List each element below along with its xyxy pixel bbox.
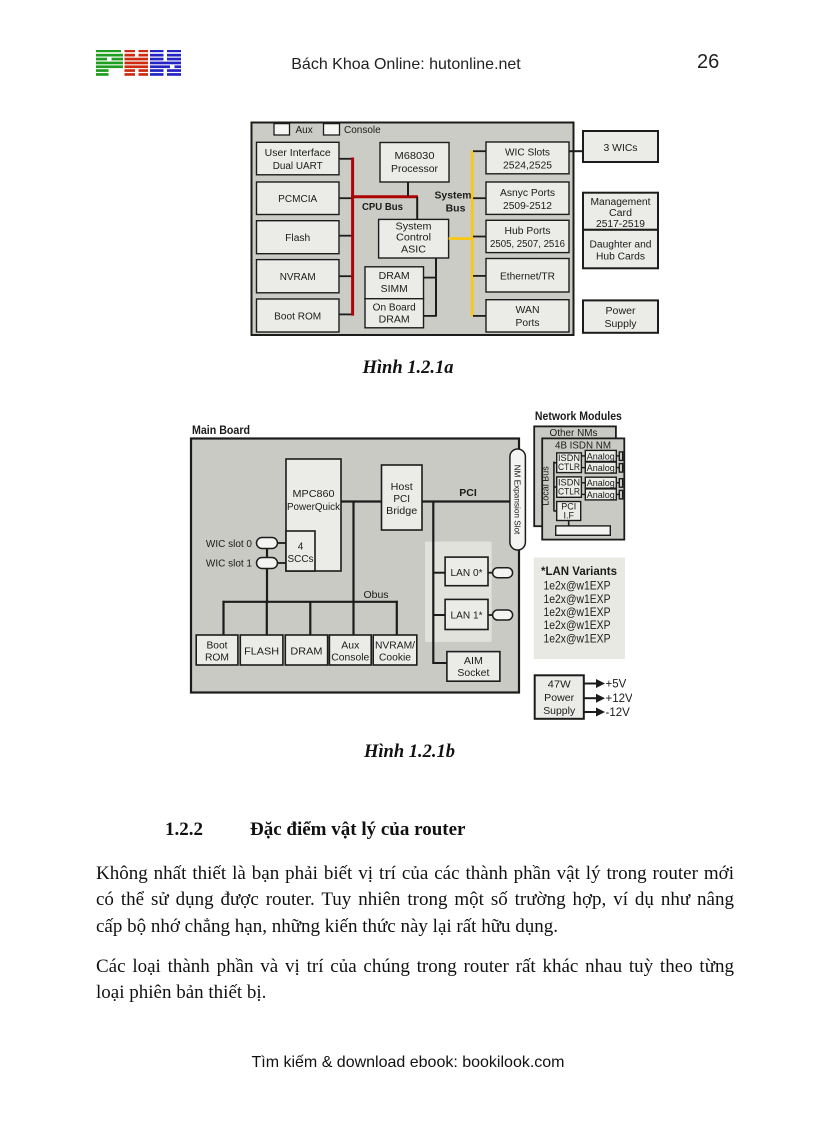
svg-text:Socket: Socket (457, 668, 489, 679)
svg-text:2517-2519: 2517-2519 (596, 219, 645, 230)
svg-text:Hub Cards: Hub Cards (596, 252, 645, 263)
svg-text:NM Expansion Slot: NM Expansion Slot (513, 465, 522, 535)
svg-text:LAN 1*: LAN 1* (451, 611, 483, 622)
svg-text:DRAM: DRAM (379, 315, 410, 326)
svg-text:DRAM: DRAM (379, 271, 410, 282)
svg-text:4: 4 (298, 542, 304, 553)
svg-text:Cookie: Cookie (379, 653, 411, 664)
svg-text:+5V: +5V (606, 679, 627, 691)
svg-text:FLASH: FLASH (244, 647, 279, 658)
svg-text:WIC slot 1: WIC slot 1 (206, 559, 253, 570)
svg-text:Analog: Analog (587, 478, 615, 488)
svg-text:Flash: Flash (285, 233, 310, 244)
svg-text:CPU Bus: CPU Bus (362, 201, 403, 213)
svg-text:NVRAM/: NVRAM/ (375, 641, 415, 652)
svg-text:*LAN Variants: *LAN Variants (541, 564, 617, 578)
svg-text:I.F: I.F (563, 511, 574, 521)
svg-text:CTLR: CTLR (558, 462, 580, 472)
svg-text:Management: Management (591, 197, 651, 208)
svg-text:Bridge: Bridge (386, 506, 417, 517)
svg-text:3 WICs: 3 WICs (604, 143, 638, 154)
svg-text:AIM: AIM (464, 656, 483, 667)
svg-text:Ports: Ports (516, 318, 540, 329)
svg-text:WIC Slots: WIC Slots (505, 148, 550, 159)
svg-text:ASIC: ASIC (401, 245, 426, 256)
svg-text:PCI: PCI (459, 487, 477, 499)
svg-text:PowerQuick: PowerQuick (287, 502, 341, 513)
svg-text:1e2x@w1EXP: 1e2x@w1EXP (544, 592, 611, 606)
svg-text:2524,2525: 2524,2525 (503, 161, 552, 172)
svg-text:2505, 2507, 2516: 2505, 2507, 2516 (490, 239, 565, 250)
svg-text:NVRAM: NVRAM (280, 272, 316, 283)
svg-text:Obus: Obus (363, 589, 388, 601)
svg-text:PCMCIA: PCMCIA (278, 194, 317, 205)
svg-text:Console: Console (331, 653, 369, 664)
svg-text:M68030: M68030 (395, 151, 435, 162)
svg-text:MPC860: MPC860 (293, 489, 335, 500)
svg-text:Ethernet/TR: Ethernet/TR (500, 272, 555, 283)
svg-text:Dual UART: Dual UART (273, 161, 323, 172)
svg-text:System: System (435, 190, 472, 202)
svg-text:PCI: PCI (393, 494, 410, 505)
svg-text:User Interface: User Interface (265, 148, 331, 159)
svg-text:2509-2512: 2509-2512 (503, 201, 552, 212)
svg-text:Aux: Aux (296, 125, 313, 136)
svg-text:Power: Power (606, 306, 637, 317)
svg-text:LAN 0*: LAN 0* (451, 568, 483, 579)
svg-text:SIMM: SIMM (381, 284, 408, 295)
svg-text:Aux: Aux (341, 641, 359, 652)
svg-text:1e2x@w1EXP: 1e2x@w1EXP (544, 605, 611, 619)
svg-text:Main Board: Main Board (192, 423, 250, 437)
svg-text:1e2x@w1EXP: 1e2x@w1EXP (544, 632, 611, 646)
svg-text:On Board: On Board (373, 303, 416, 314)
svg-text:+12V: +12V (606, 693, 633, 705)
svg-text:1e2x@w1EXP: 1e2x@w1EXP (544, 618, 611, 632)
svg-text:Card: Card (609, 208, 632, 219)
svg-text:SCCs: SCCs (288, 554, 314, 565)
svg-text:Control: Control (396, 233, 431, 244)
svg-text:-12V: -12V (606, 707, 631, 719)
svg-text:Other NMs: Other NMs (550, 428, 598, 439)
svg-text:System: System (396, 222, 432, 233)
svg-text:Power: Power (544, 692, 575, 704)
svg-text:Analog: Analog (587, 490, 615, 500)
svg-text:Analog: Analog (587, 463, 615, 473)
svg-text:Boot ROM: Boot ROM (274, 312, 321, 323)
svg-text:WIC slot 0: WIC slot 0 (206, 539, 253, 550)
svg-text:Hub Ports: Hub Ports (505, 226, 551, 237)
svg-text:Bus: Bus (446, 203, 466, 215)
svg-text:DRAM: DRAM (290, 647, 322, 658)
svg-text:1e2x@w1EXP: 1e2x@w1EXP (544, 579, 611, 593)
svg-text:ROM: ROM (205, 653, 229, 664)
svg-text:WAN: WAN (516, 305, 540, 316)
svg-text:CTLR: CTLR (558, 487, 580, 497)
svg-text:Analog: Analog (587, 451, 615, 461)
svg-text:Host: Host (391, 482, 413, 493)
svg-text:Processor: Processor (391, 164, 439, 175)
svg-text:Local Bus: Local Bus (541, 466, 551, 506)
svg-text:47W: 47W (548, 679, 571, 691)
svg-text:Daughter and: Daughter and (590, 240, 652, 251)
svg-text:Network Modules: Network Modules (535, 409, 622, 423)
svg-text:Supply: Supply (605, 319, 637, 330)
svg-text:Asnyc Ports: Asnyc Ports (500, 188, 555, 199)
svg-text:Console: Console (344, 125, 381, 136)
svg-text:Boot: Boot (207, 641, 228, 652)
svg-text:Supply: Supply (543, 705, 576, 717)
